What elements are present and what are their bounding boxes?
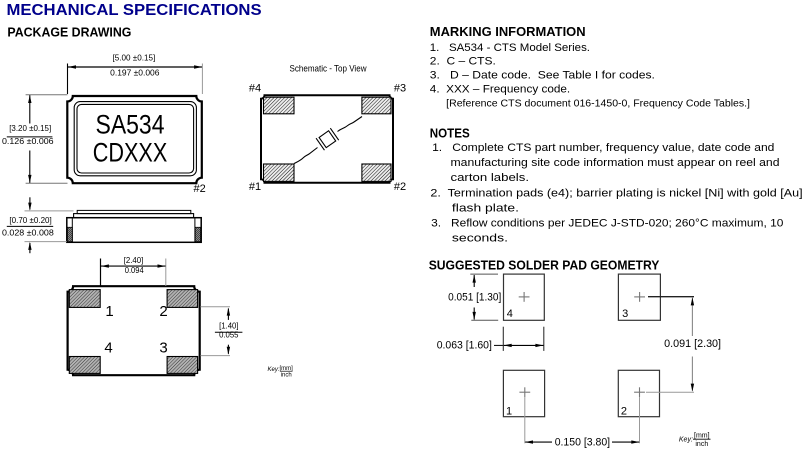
svg-text:0.126 ±0.006: 0.126 ±0.006 <box>2 137 54 146</box>
svg-text:1: 1 <box>105 303 113 320</box>
svg-text:0.055: 0.055 <box>219 331 239 340</box>
svg-text:3. D – Date code. See Table: 3. D – Date code. See Table I for codes. <box>430 70 655 82</box>
svg-text:seconds.: seconds. <box>452 233 508 245</box>
svg-text:manufacturing site code inform: manufacturing site code information must… <box>451 157 780 169</box>
svg-text:SA534: SA534 <box>96 110 165 140</box>
svg-text:SUGGESTED SOLDER PAD GEOMETRY: SUGGESTED SOLDER PAD GEOMETRY <box>429 258 660 273</box>
svg-text:inch: inch <box>281 373 292 379</box>
svg-text:[3.20 ±0.15]: [3.20 ±0.15] <box>9 124 51 133</box>
svg-text:[Reference CTS document 016-14: [Reference CTS document 016-1450-0, Freq… <box>446 99 750 110</box>
svg-text:MARKING INFORMATION: MARKING INFORMATION <box>430 25 586 39</box>
svg-text:0.150 [3.80]: 0.150 [3.80] <box>555 437 610 449</box>
svg-text:[1.40]: [1.40] <box>219 321 238 330</box>
svg-text:Key:: Key: <box>679 437 693 444</box>
svg-text:3: 3 <box>622 308 628 320</box>
svg-text:CDXXX: CDXXX <box>93 138 168 168</box>
svg-text:Key:: Key: <box>268 367 280 373</box>
svg-text:0.197 ±0.006: 0.197 ±0.006 <box>110 69 160 78</box>
svg-text:carton labels.: carton labels. <box>451 172 530 184</box>
svg-text:0.094: 0.094 <box>125 266 144 275</box>
svg-text:3. Reflow conditions per JED: 3. Reflow conditions per JEDEC J-STD-020… <box>431 218 783 230</box>
svg-text:[mm]: [mm] <box>694 433 710 440</box>
svg-text:#1: #1 <box>249 181 261 193</box>
svg-text:2. C – CTS.: 2. C – CTS. <box>430 56 496 68</box>
svg-text:Schematic - Top View: Schematic - Top View <box>290 64 367 75</box>
svg-text:1. SA534 - CTS Model Series.: 1. SA534 - CTS Model Series. <box>430 42 590 54</box>
svg-text:#2: #2 <box>194 183 206 195</box>
svg-text:#2: #2 <box>394 181 406 193</box>
svg-text:0.063 [1.60]: 0.063 [1.60] <box>437 339 492 351</box>
svg-text:[2.40]: [2.40] <box>124 256 144 265</box>
svg-text:1: 1 <box>506 405 512 417</box>
svg-text:#4: #4 <box>249 83 261 95</box>
svg-text:MECHANICAL SPECIFICATIONS: MECHANICAL SPECIFICATIONS <box>7 2 262 19</box>
svg-text:0.028 ±0.008: 0.028 ±0.008 <box>2 228 54 237</box>
svg-text:#3: #3 <box>394 83 406 95</box>
svg-text:[0.70 ±0.20]: [0.70 ±0.20] <box>9 216 51 225</box>
svg-text:3: 3 <box>159 339 167 356</box>
svg-text:4: 4 <box>507 308 513 320</box>
svg-text:2. Termination pads (e4); bar: 2. Termination pads (e4); barrier platin… <box>430 187 802 199</box>
svg-text:4. XXX – Frequency code.: 4. XXX – Frequency code. <box>430 84 570 96</box>
svg-text:2: 2 <box>159 303 167 320</box>
svg-text:flash plate.: flash plate. <box>452 202 519 214</box>
svg-text:2: 2 <box>621 405 627 417</box>
svg-text:4: 4 <box>104 339 112 356</box>
svg-text:1. Complete CTS part number,: 1. Complete CTS part number, frequency v… <box>432 142 774 154</box>
svg-text:inch: inch <box>695 441 708 448</box>
svg-text:[5.00 ±0.15]: [5.00 ±0.15] <box>113 53 156 62</box>
svg-text:0.051 [1.30]: 0.051 [1.30] <box>448 292 501 304</box>
svg-text:0.091 [2.30]: 0.091 [2.30] <box>664 338 721 350</box>
svg-text:NOTES: NOTES <box>430 127 470 141</box>
svg-text:PACKAGE DRAWING: PACKAGE DRAWING <box>7 25 131 39</box>
